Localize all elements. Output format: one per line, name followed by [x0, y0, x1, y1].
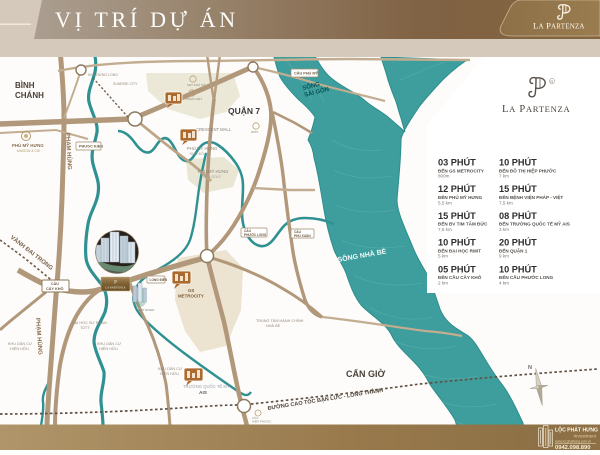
- svg-text:KHU DÂN CƯ: KHU DÂN CƯ: [8, 341, 33, 346]
- svg-text:KĐT PHÚ MỸ: KĐT PHÚ MỸ: [187, 82, 205, 87]
- svg-text:PHÚ XUÂN: PHÚ XUÂN: [294, 233, 311, 238]
- svg-text:3 km: 3 km: [499, 227, 509, 232]
- svg-text:5 km: 5 km: [438, 254, 448, 259]
- svg-text:R: R: [550, 79, 553, 84]
- svg-text:15 PHÚT: 15 PHÚT: [438, 210, 476, 221]
- svg-text:MAISON & CIE: MAISON & CIE: [17, 149, 41, 153]
- svg-text:Investment: Investment: [574, 433, 597, 438]
- svg-text:HIỆN HỮU: HIỆN HỮU: [10, 346, 29, 351]
- svg-text:RMIT: RMIT: [251, 130, 258, 134]
- svg-text:ĐẾN ĐÔ THỊ HIỆP PHƯỚC: ĐẾN ĐÔ THỊ HIỆP PHƯỚC: [499, 166, 557, 173]
- svg-text:20 PHÚT: 20 PHÚT: [499, 237, 537, 248]
- svg-text:10 PHÚT: 10 PHÚT: [438, 237, 476, 248]
- svg-text:ĐẾN CẦU PHƯỚC LONG: ĐẾN CẦU PHƯỚC LONG: [499, 273, 554, 280]
- svg-text:10 PHÚT: 10 PHÚT: [499, 263, 537, 274]
- svg-text:PHÚ MỸ HƯNG: PHÚ MỸ HƯNG: [198, 169, 228, 174]
- svg-text:KDC HƯNG LONG: KDC HƯNG LONG: [88, 73, 118, 77]
- svg-text:LA PARTENZA: LA PARTENZA: [533, 21, 585, 31]
- svg-text:NHÀ BÈ: NHÀ BÈ: [266, 323, 281, 328]
- svg-text:PHƯỚC LONG: PHƯỚC LONG: [244, 232, 267, 237]
- svg-text:KHU ĐÔ THỊ: KHU ĐÔ THỊ: [190, 151, 211, 156]
- svg-text:CẦU PHÚ MỸ: CẦU PHÚ MỸ: [294, 71, 319, 76]
- svg-text:GS: GS: [188, 288, 194, 293]
- svg-text:ĐẾN BV TIM TÂM ĐỨC: ĐẾN BV TIM TÂM ĐỨC: [438, 221, 488, 227]
- svg-text:CRESCENT MALL: CRESCENT MALL: [196, 127, 232, 132]
- svg-text:12 PHÚT: 12 PHÚT: [438, 183, 476, 194]
- svg-text:LỘC PHÁT HƯNG: LỘC PHÁT HƯNG: [555, 426, 598, 434]
- svg-text:TRUNG TÂM HÀNH CHÍNH: TRUNG TÂM HÀNH CHÍNH: [256, 318, 304, 323]
- svg-text:HIỆN HỮU: HIỆN HỮU: [99, 346, 118, 351]
- svg-text:ĐẾN CẦU CÂY KHÔ: ĐẾN CẦU CÂY KHÔ: [438, 273, 482, 280]
- svg-text:PHẠM VIỆT: PHẠM VIỆT: [186, 96, 202, 101]
- svg-text:CẤN GIỜ: CẤN GIỜ: [346, 368, 386, 379]
- svg-text:05 PHÚT: 05 PHÚT: [438, 263, 476, 274]
- svg-text:ĐẾN PHÚ MỸ HƯNG: ĐẾN PHÚ MỸ HƯNG: [438, 194, 483, 200]
- svg-text:CÂY KHÔ: CÂY KHÔ: [46, 286, 63, 291]
- svg-text:4 km: 4 km: [499, 280, 509, 285]
- svg-text:AIS: AIS: [199, 390, 208, 396]
- svg-text:7,5 km: 7,5 km: [499, 200, 513, 205]
- svg-text:SÂN GOLF: SÂN GOLF: [203, 175, 222, 179]
- svg-text:ĐẾN BỆNH VIỆN PHÁP - VIỆT: ĐẾN BỆNH VIỆN PHÁP - VIỆT: [499, 193, 563, 200]
- svg-text:ĐẾN QUẬN 1: ĐẾN QUẬN 1: [499, 247, 528, 253]
- svg-text:03 PHÚT: 03 PHÚT: [438, 157, 476, 168]
- svg-text:PHÚ MỸ HƯNG: PHÚ MỸ HƯNG: [187, 146, 217, 151]
- svg-text:CẦU: CẦU: [51, 282, 59, 286]
- svg-text:QUẬN 7: QUẬN 7: [228, 105, 260, 116]
- svg-text:TDTT: TDTT: [80, 326, 90, 330]
- svg-text:www.locphathung.com.vn: www.locphathung.com.vn: [555, 439, 591, 443]
- svg-text:KHU DÂN CƯ: KHU DÂN CƯ: [97, 341, 122, 346]
- svg-text:2 km: 2 km: [438, 280, 448, 285]
- svg-text:0942.098.890: 0942.098.890: [555, 445, 590, 450]
- svg-text:9 km: 9 km: [499, 254, 509, 259]
- svg-text:ĐẠI HỌC SƯ PHẠM: ĐẠI HỌC SƯ PHẠM: [72, 321, 107, 325]
- svg-text:08 PHÚT: 08 PHÚT: [499, 210, 537, 221]
- svg-text:ZEIT RIVER: ZEIT RIVER: [138, 308, 155, 312]
- svg-text:BÌNH: BÌNH: [15, 81, 35, 90]
- svg-text:LA PARTENZA: LA PARTENZA: [105, 286, 126, 290]
- svg-text:7,5 km: 7,5 km: [438, 227, 452, 232]
- svg-text:ĐẾN ĐẠI HỌC RMIT: ĐẾN ĐẠI HỌC RMIT: [438, 247, 481, 253]
- svg-text:HIỆP PHƯỚC: HIỆP PHƯỚC: [252, 419, 272, 424]
- svg-text:LA PARTENZA: LA PARTENZA: [502, 104, 570, 115]
- svg-text:15 PHÚT: 15 PHÚT: [499, 183, 537, 194]
- svg-text:PHƯớC KIỂN: PHƯớC KIỂN: [79, 144, 103, 149]
- svg-text:PHÚ MỸ HƯNG: PHÚ MỸ HƯNG: [12, 143, 44, 148]
- svg-text:ĐẾN GS METROCITY: ĐẾN GS METROCITY: [438, 167, 484, 173]
- svg-text:METROCITY: METROCITY: [178, 294, 204, 299]
- svg-text:N: N: [528, 365, 532, 371]
- svg-text:SUNRISE CITY: SUNRISE CITY: [113, 82, 138, 86]
- svg-text:LONG ĐIỀN: LONG ĐIỀN: [150, 277, 168, 282]
- svg-text:800m: 800m: [438, 174, 450, 179]
- svg-text:ĐẾN TRƯỜNG QUỐC TẾ MỸ AIS: ĐẾN TRƯỜNG QUỐC TẾ MỸ AIS: [499, 220, 570, 227]
- svg-text:TRƯỜNG QUỐC TẾ MỸ: TRƯỜNG QUỐC TẾ MỸ: [183, 384, 230, 389]
- svg-text:KHU DÂN CƯ: KHU DÂN CƯ: [158, 366, 183, 371]
- svg-text:VỊ TRÍ DỰ ÁN: VỊ TRÍ DỰ ÁN: [55, 7, 239, 32]
- svg-text:10 PHÚT: 10 PHÚT: [499, 157, 537, 168]
- svg-text:CHÁNH: CHÁNH: [15, 91, 44, 100]
- svg-text:HIỆN HỮU: HIỆN HỮU: [160, 371, 179, 376]
- svg-text:7 km: 7 km: [499, 174, 509, 179]
- svg-text:5,5 km: 5,5 km: [438, 200, 452, 205]
